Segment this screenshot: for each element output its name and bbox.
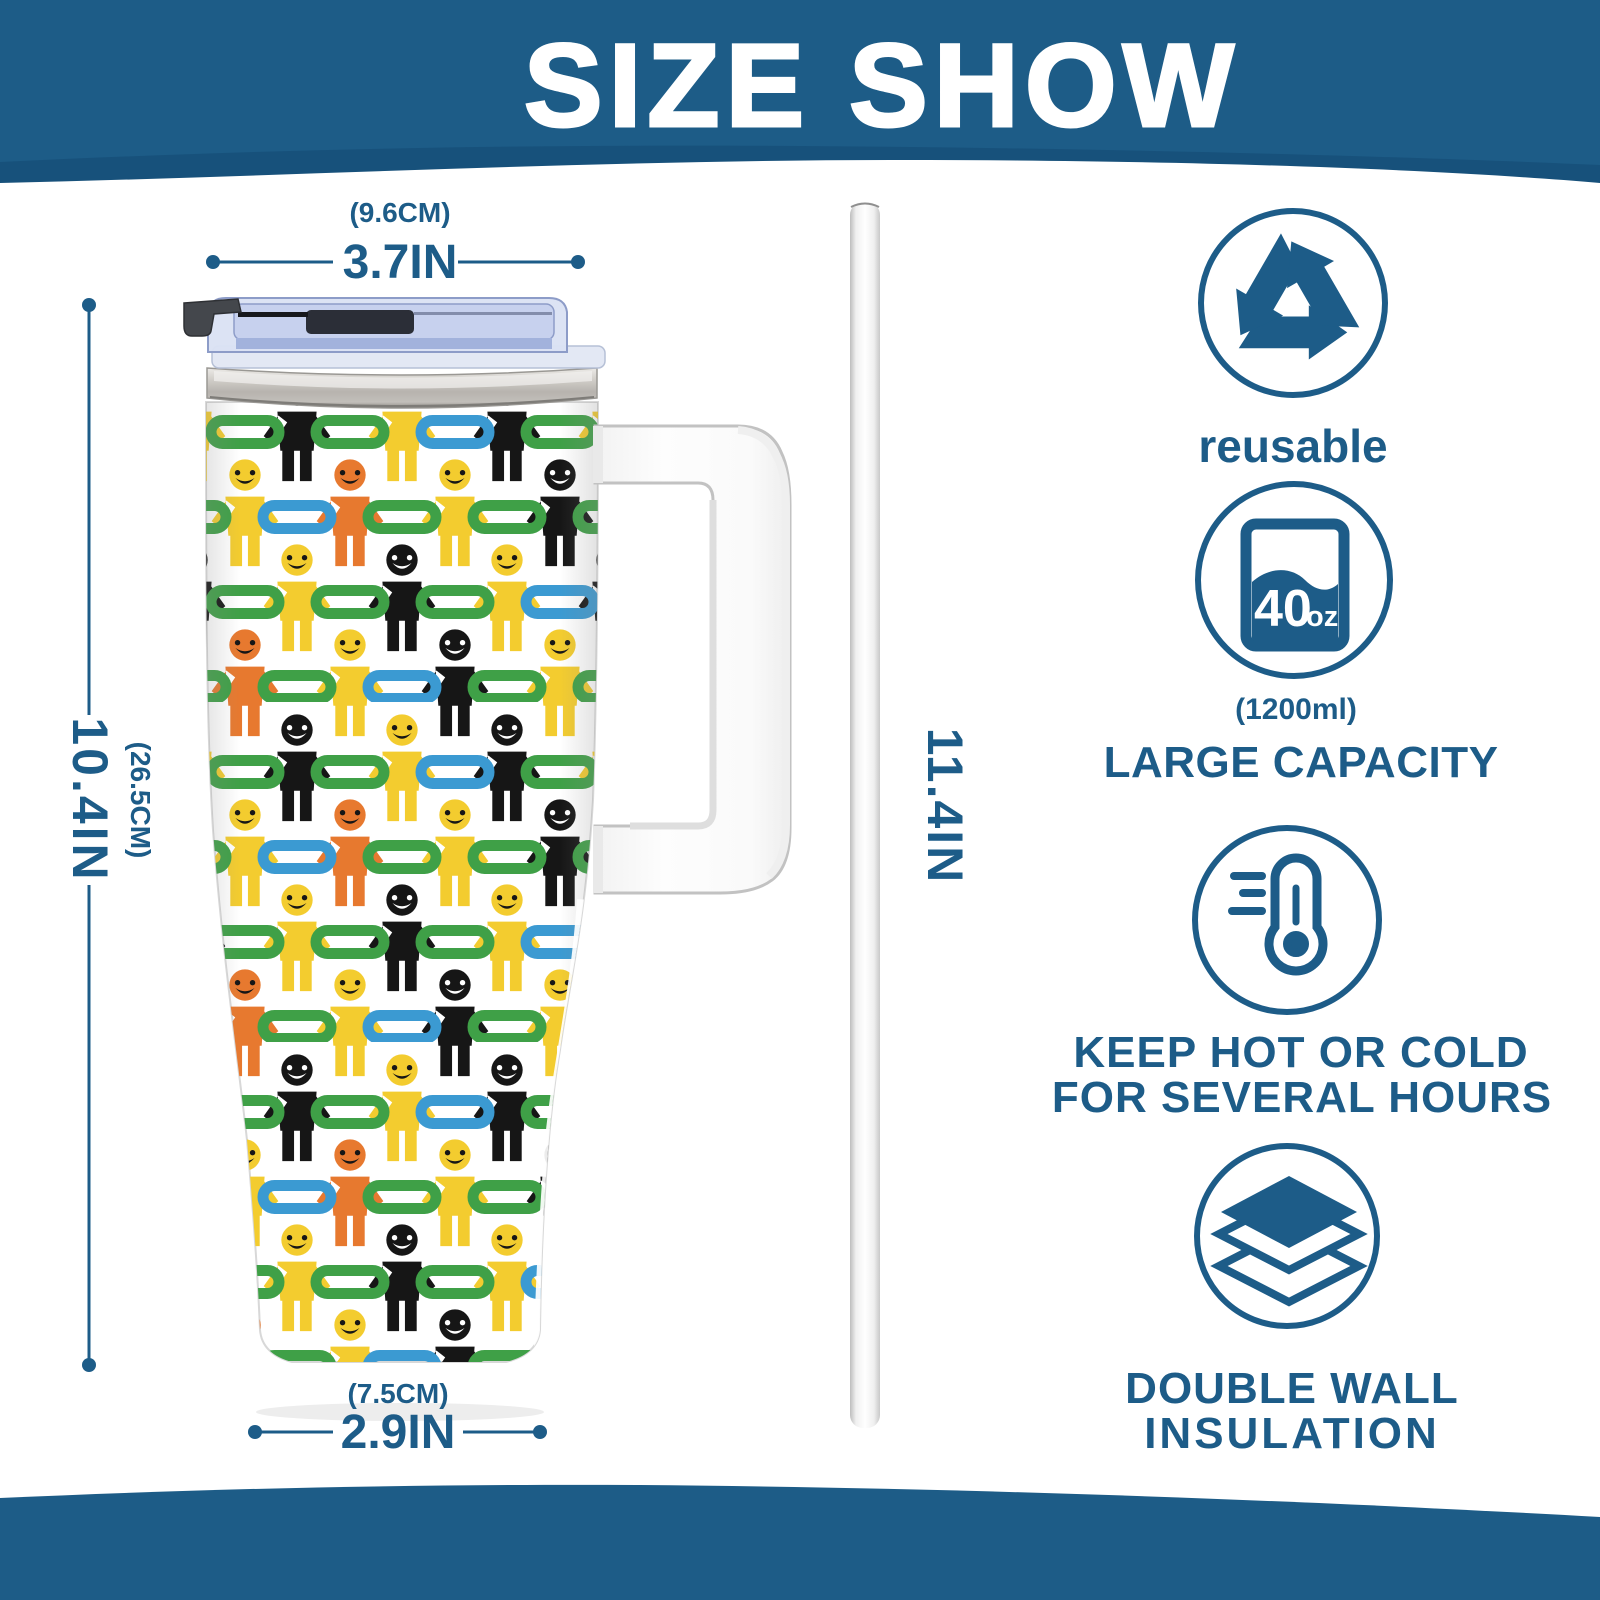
svg-text:FOR SEVERAL HOURS: FOR SEVERAL HOURS xyxy=(1052,1073,1552,1122)
svg-text:40: 40 xyxy=(1254,580,1312,638)
svg-text:11.4IN: 11.4IN xyxy=(917,728,973,885)
svg-text:2.9IN: 2.9IN xyxy=(341,1406,456,1459)
svg-text:10.4IN: 10.4IN xyxy=(62,717,118,882)
svg-text:(9.6CM): (9.6CM) xyxy=(349,197,450,228)
svg-text:SIZE SHOW: SIZE SHOW xyxy=(524,20,1240,152)
svg-text:(1200ml): (1200ml) xyxy=(1235,693,1357,726)
svg-text:(7.5CM): (7.5CM) xyxy=(347,1378,448,1409)
svg-text:KEEP HOT OR COLD: KEEP HOT OR COLD xyxy=(1073,1028,1528,1077)
svg-text:3.7IN: 3.7IN xyxy=(343,236,458,289)
svg-text:LARGE CAPACITY: LARGE CAPACITY xyxy=(1104,738,1499,787)
svg-text:oz: oz xyxy=(1306,601,1338,633)
svg-text:reusable: reusable xyxy=(1198,420,1387,472)
svg-text:INSULATION: INSULATION xyxy=(1144,1409,1440,1458)
svg-text:DOUBLE WALL: DOUBLE WALL xyxy=(1125,1364,1459,1413)
svg-text:(26.5CM): (26.5CM) xyxy=(125,742,156,859)
